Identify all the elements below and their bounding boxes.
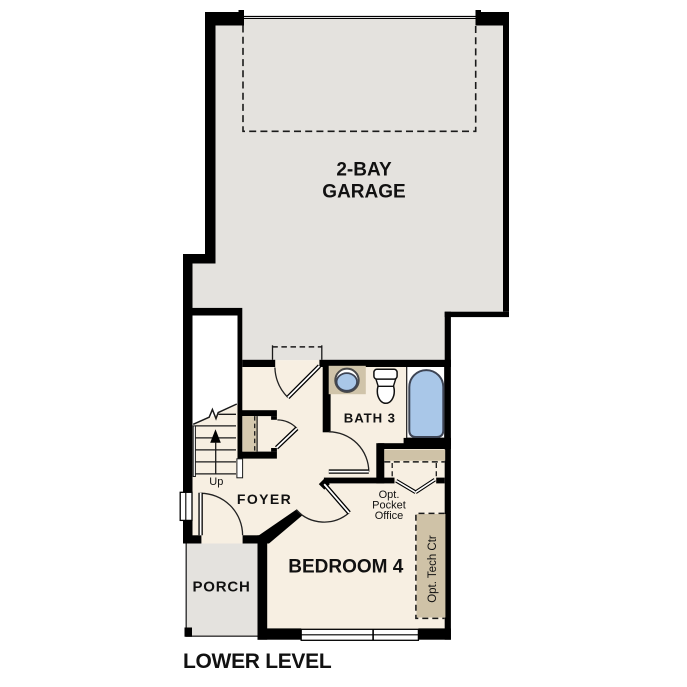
svg-text:FOYER: FOYER — [237, 491, 292, 507]
svg-text:BEDROOM 4: BEDROOM 4 — [288, 557, 404, 578]
svg-text:Up: Up — [209, 476, 223, 488]
svg-text:BATH 3: BATH 3 — [344, 411, 396, 426]
svg-text:Opt. Tech Ctr: Opt. Tech Ctr — [427, 535, 439, 603]
svg-text:Office: Office — [375, 510, 404, 522]
svg-text:LOWER LEVEL: LOWER LEVEL — [183, 650, 332, 673]
svg-text:GARAGE: GARAGE — [322, 182, 405, 203]
svg-text:PORCH: PORCH — [193, 579, 251, 596]
svg-text:2-BAY: 2-BAY — [336, 160, 392, 181]
